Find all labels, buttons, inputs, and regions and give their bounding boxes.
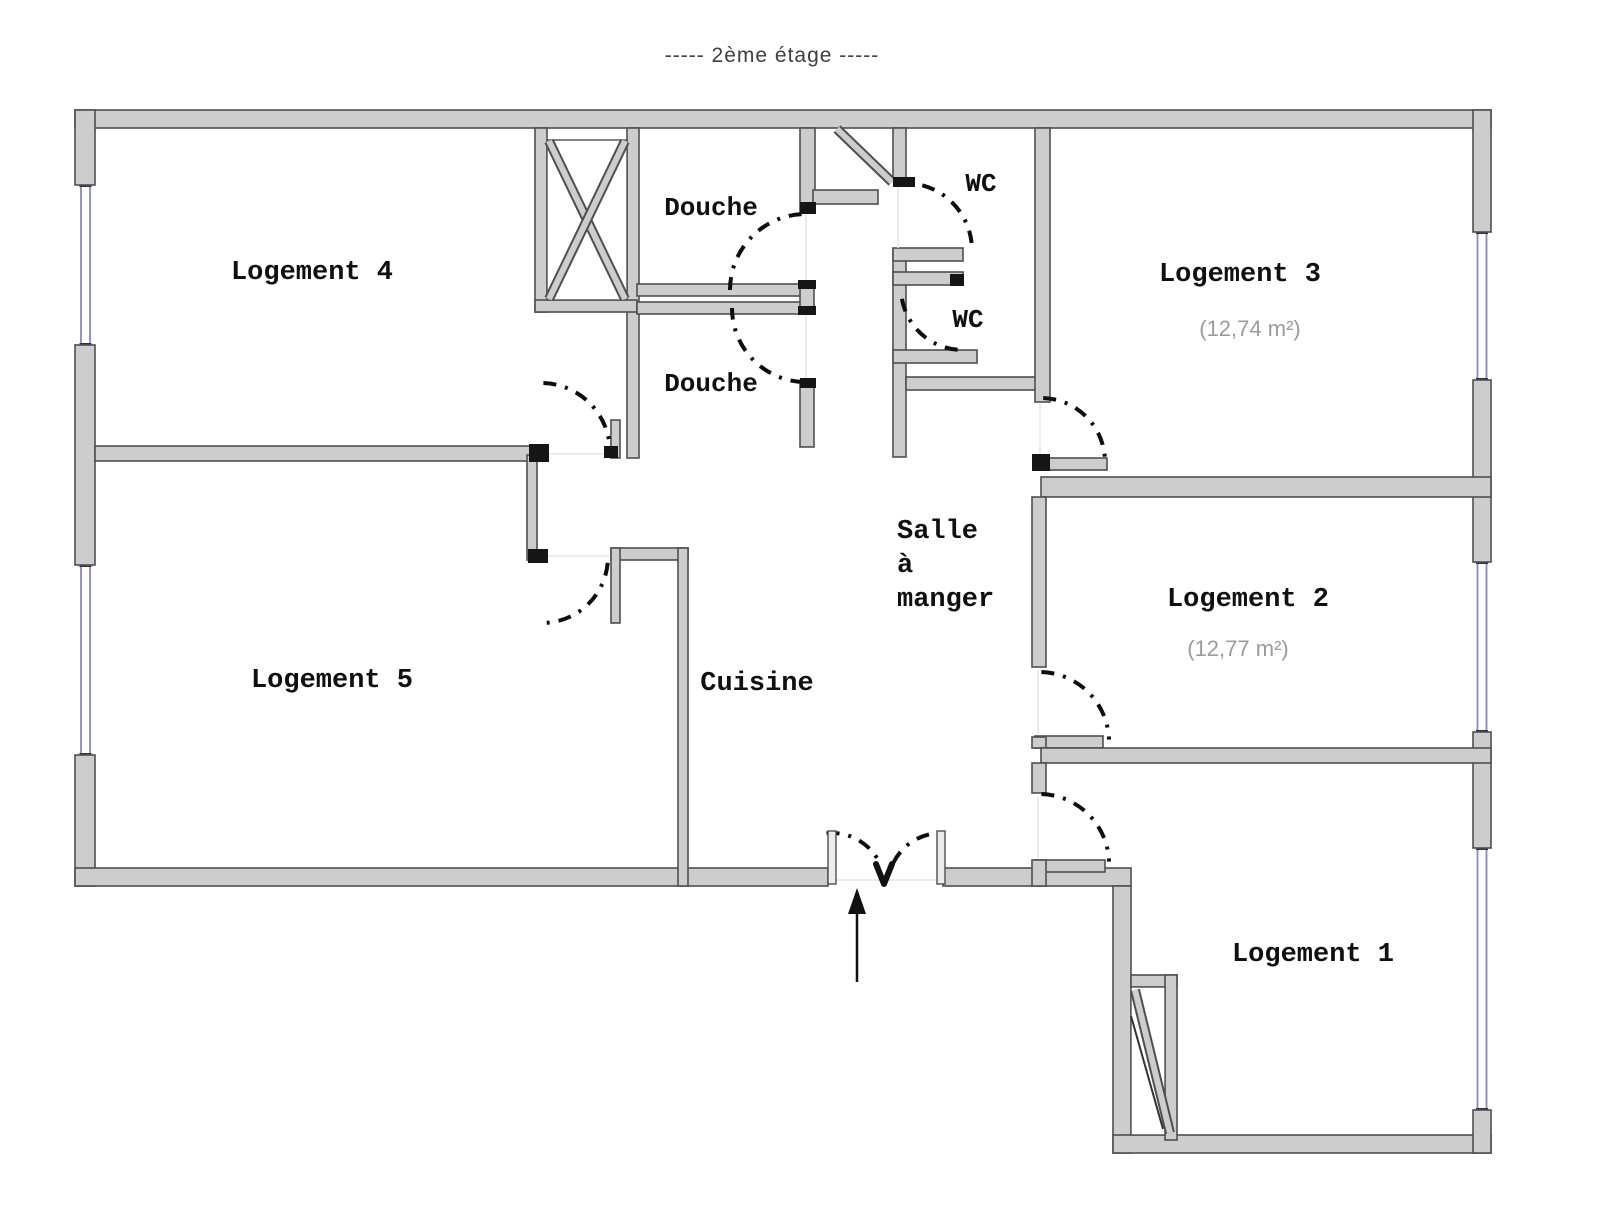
wall-segment [637, 284, 812, 296]
room-label-logement-2: Logement 2 [1167, 585, 1329, 615]
room-label-salle-a-manger: Salleàmanger [897, 517, 994, 615]
entrance-door-jamb [937, 831, 945, 884]
floor-plan-page: ----- 2ème étage ----- Logement 4Logemen… [0, 0, 1600, 1225]
logement-4-door-swing-arc [543, 383, 610, 448]
wall-segment [75, 755, 95, 886]
wall-segment [1113, 886, 1131, 1153]
wall-segment [1473, 380, 1491, 562]
wall-segment [800, 383, 814, 447]
vestibule-door-leaf-fill [837, 129, 892, 182]
room-label-logement-4: Logement 4 [231, 258, 393, 288]
wall-end-cap [604, 446, 618, 458]
wall-segment [893, 350, 977, 363]
room-label-douche-2: Douche [664, 369, 758, 399]
wall-segment [813, 190, 878, 204]
wall-segment [75, 110, 1491, 128]
entry-arrow-head [848, 888, 866, 914]
wall-segment [535, 300, 637, 312]
wall-segment [1032, 860, 1046, 886]
wall-segment [1041, 748, 1491, 763]
room-area-logement-2: (12,77 m²) [1187, 636, 1288, 661]
wall-end-cap [893, 177, 915, 187]
window-logement-2 [1474, 562, 1490, 732]
wall-segment [1041, 477, 1491, 497]
wall-segment [527, 455, 537, 560]
wall-segment [1032, 763, 1046, 793]
wall-segment [637, 302, 802, 314]
wall-segment [1473, 110, 1491, 232]
douche-1-door-swing-arc [730, 214, 803, 290]
window-logement-1 [1474, 848, 1490, 1110]
wall-segment [611, 548, 688, 560]
room-label-logement-1: Logement 1 [1232, 940, 1394, 970]
room-label-cuisine: Cuisine [700, 669, 813, 699]
logement-3-door-swing-arc [1043, 398, 1105, 460]
wall-segment [678, 548, 688, 886]
wall-end-cap [798, 280, 816, 289]
wall-end-cap [950, 274, 964, 286]
floor-plan: Logement 4Logement 5Logement 3(12,74 m²)… [0, 0, 1600, 1225]
wall-segment [611, 548, 620, 623]
wall-end-cap [528, 549, 548, 563]
wall-segment [893, 248, 963, 261]
window-logement-4 [78, 185, 94, 345]
wall-segment [75, 345, 95, 565]
logement-5-door-swing-arc [546, 563, 608, 623]
window-logement-3 [1474, 232, 1490, 380]
room-label-wc-2: WC [952, 305, 983, 335]
wall-end-cap [798, 306, 816, 315]
wall-end-cap [800, 202, 816, 214]
wall-segment [95, 446, 538, 461]
floor-title: ----- 2ème étage ----- [0, 44, 1544, 68]
room-label-logement-5: Logement 5 [251, 666, 413, 696]
wall-segment [893, 128, 906, 180]
wall-segment [1473, 1110, 1491, 1153]
room-label-wc-1: WC [965, 169, 996, 199]
wc-2-door-swing-arc [901, 290, 958, 350]
wc-1-door-swing-arc [922, 185, 971, 243]
wall-segment [535, 128, 547, 312]
entrance-door-jamb [828, 831, 836, 884]
room-area-logement-3: (12,74 m²) [1199, 316, 1300, 341]
logement-2-door-swing-arc [1041, 672, 1109, 740]
wall-segment [75, 110, 95, 185]
wall-segment [1032, 737, 1046, 748]
wall-segment [1032, 497, 1046, 667]
wall-segment [906, 377, 1042, 390]
wall-end-cap [800, 378, 816, 388]
door-meeting-mark [876, 864, 892, 884]
room-label-logement-3: Logement 3 [1159, 260, 1321, 290]
window-logement-5 [78, 565, 94, 755]
logement-1-door-swing-arc [1041, 794, 1109, 862]
wall-segment [75, 868, 828, 886]
wall-segment [1035, 128, 1050, 402]
room-label-douche-1: Douche [664, 193, 758, 223]
wall-end-cap [1032, 454, 1050, 471]
wall-end-cap [529, 444, 549, 462]
